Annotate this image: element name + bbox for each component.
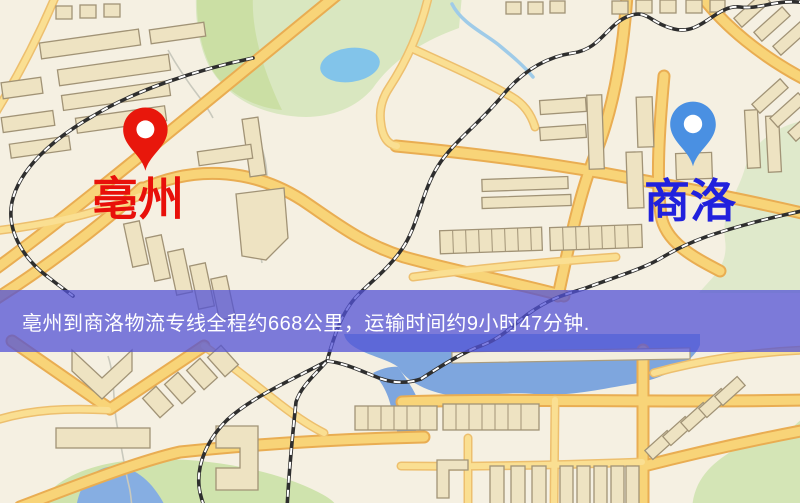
screenshot-root: 亳州 商洛 亳州到商洛物流专线全程约668公里，运输时间约9小时47分钟. <box>0 0 800 503</box>
pin-hole <box>136 120 154 138</box>
route-info-banner: 亳州到商洛物流专线全程约668公里，运输时间约9小时47分钟. <box>0 290 800 352</box>
map-canvas[interactable]: 亳州 商洛 <box>0 0 800 503</box>
route-info-text: 亳州到商洛物流专线全程约668公里，运输时间约9小时47分钟. <box>22 307 590 336</box>
origin-label: 亳州 <box>92 174 184 225</box>
destination-label: 商洛 <box>644 176 737 227</box>
building-cluster-top-center <box>506 0 725 14</box>
pin-hole <box>684 115 702 133</box>
